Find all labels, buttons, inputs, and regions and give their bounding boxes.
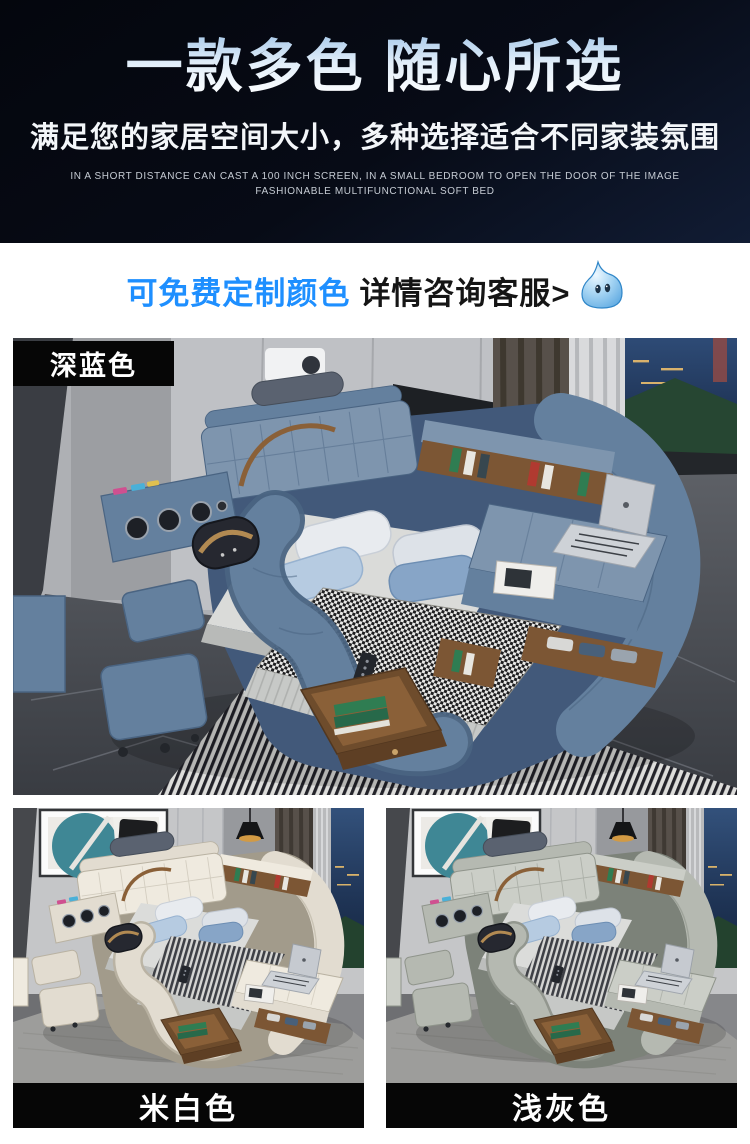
contact-service-link[interactable]: 详情咨询客服> xyxy=(359,268,570,313)
color-variants-grid: 米白色 xyxy=(13,808,750,1128)
color-label-dark-blue: 深蓝色 xyxy=(13,341,174,386)
product-image-dark-blue: 深蓝色 xyxy=(13,338,737,795)
hero-caption-line2: FASHIONABLE MULTIFUNCTIONAL SOFT BED xyxy=(0,184,750,199)
color-label-light-gray: 浅灰色 xyxy=(386,1083,737,1128)
product-image-light-gray: 浅灰色 xyxy=(386,808,737,1128)
hero-section: 一款多色 随心所选 满足您的家居空间大小，多种选择适合不同家装氛围 IN A S… xyxy=(0,0,750,243)
bedroom-scene xyxy=(13,808,364,1083)
page-title: 一款多色 随心所选 xyxy=(0,36,750,99)
bedroom-scene xyxy=(386,808,737,1083)
bedroom-scene-light-gray xyxy=(386,808,737,1083)
free-customize-text: 可免费定制颜色 xyxy=(126,268,350,313)
bedroom-scene-beige xyxy=(13,808,364,1083)
product-detail-page: 一款多色 随心所选 满足您的家居空间大小，多种选择适合不同家装氛围 IN A S… xyxy=(0,0,750,1144)
left-cabinet-sliver xyxy=(13,596,65,692)
hero-subtitle: 满足您的家居空间大小，多种选择适合不同家装氛围 xyxy=(0,114,750,156)
hero-caption-line1: IN A SHORT DISTANCE CAN CAST A 100 INCH … xyxy=(0,169,750,184)
chat-bubble-mascot-icon[interactable] xyxy=(580,260,624,312)
color-label-beige: 米白色 xyxy=(13,1083,364,1128)
magazines xyxy=(493,561,556,599)
product-image-beige: 米白色 xyxy=(13,808,364,1128)
customize-notice-bar: 可免费定制颜色 详情咨询客服> xyxy=(0,243,750,338)
bedroom-scene-dark-blue xyxy=(13,338,737,795)
